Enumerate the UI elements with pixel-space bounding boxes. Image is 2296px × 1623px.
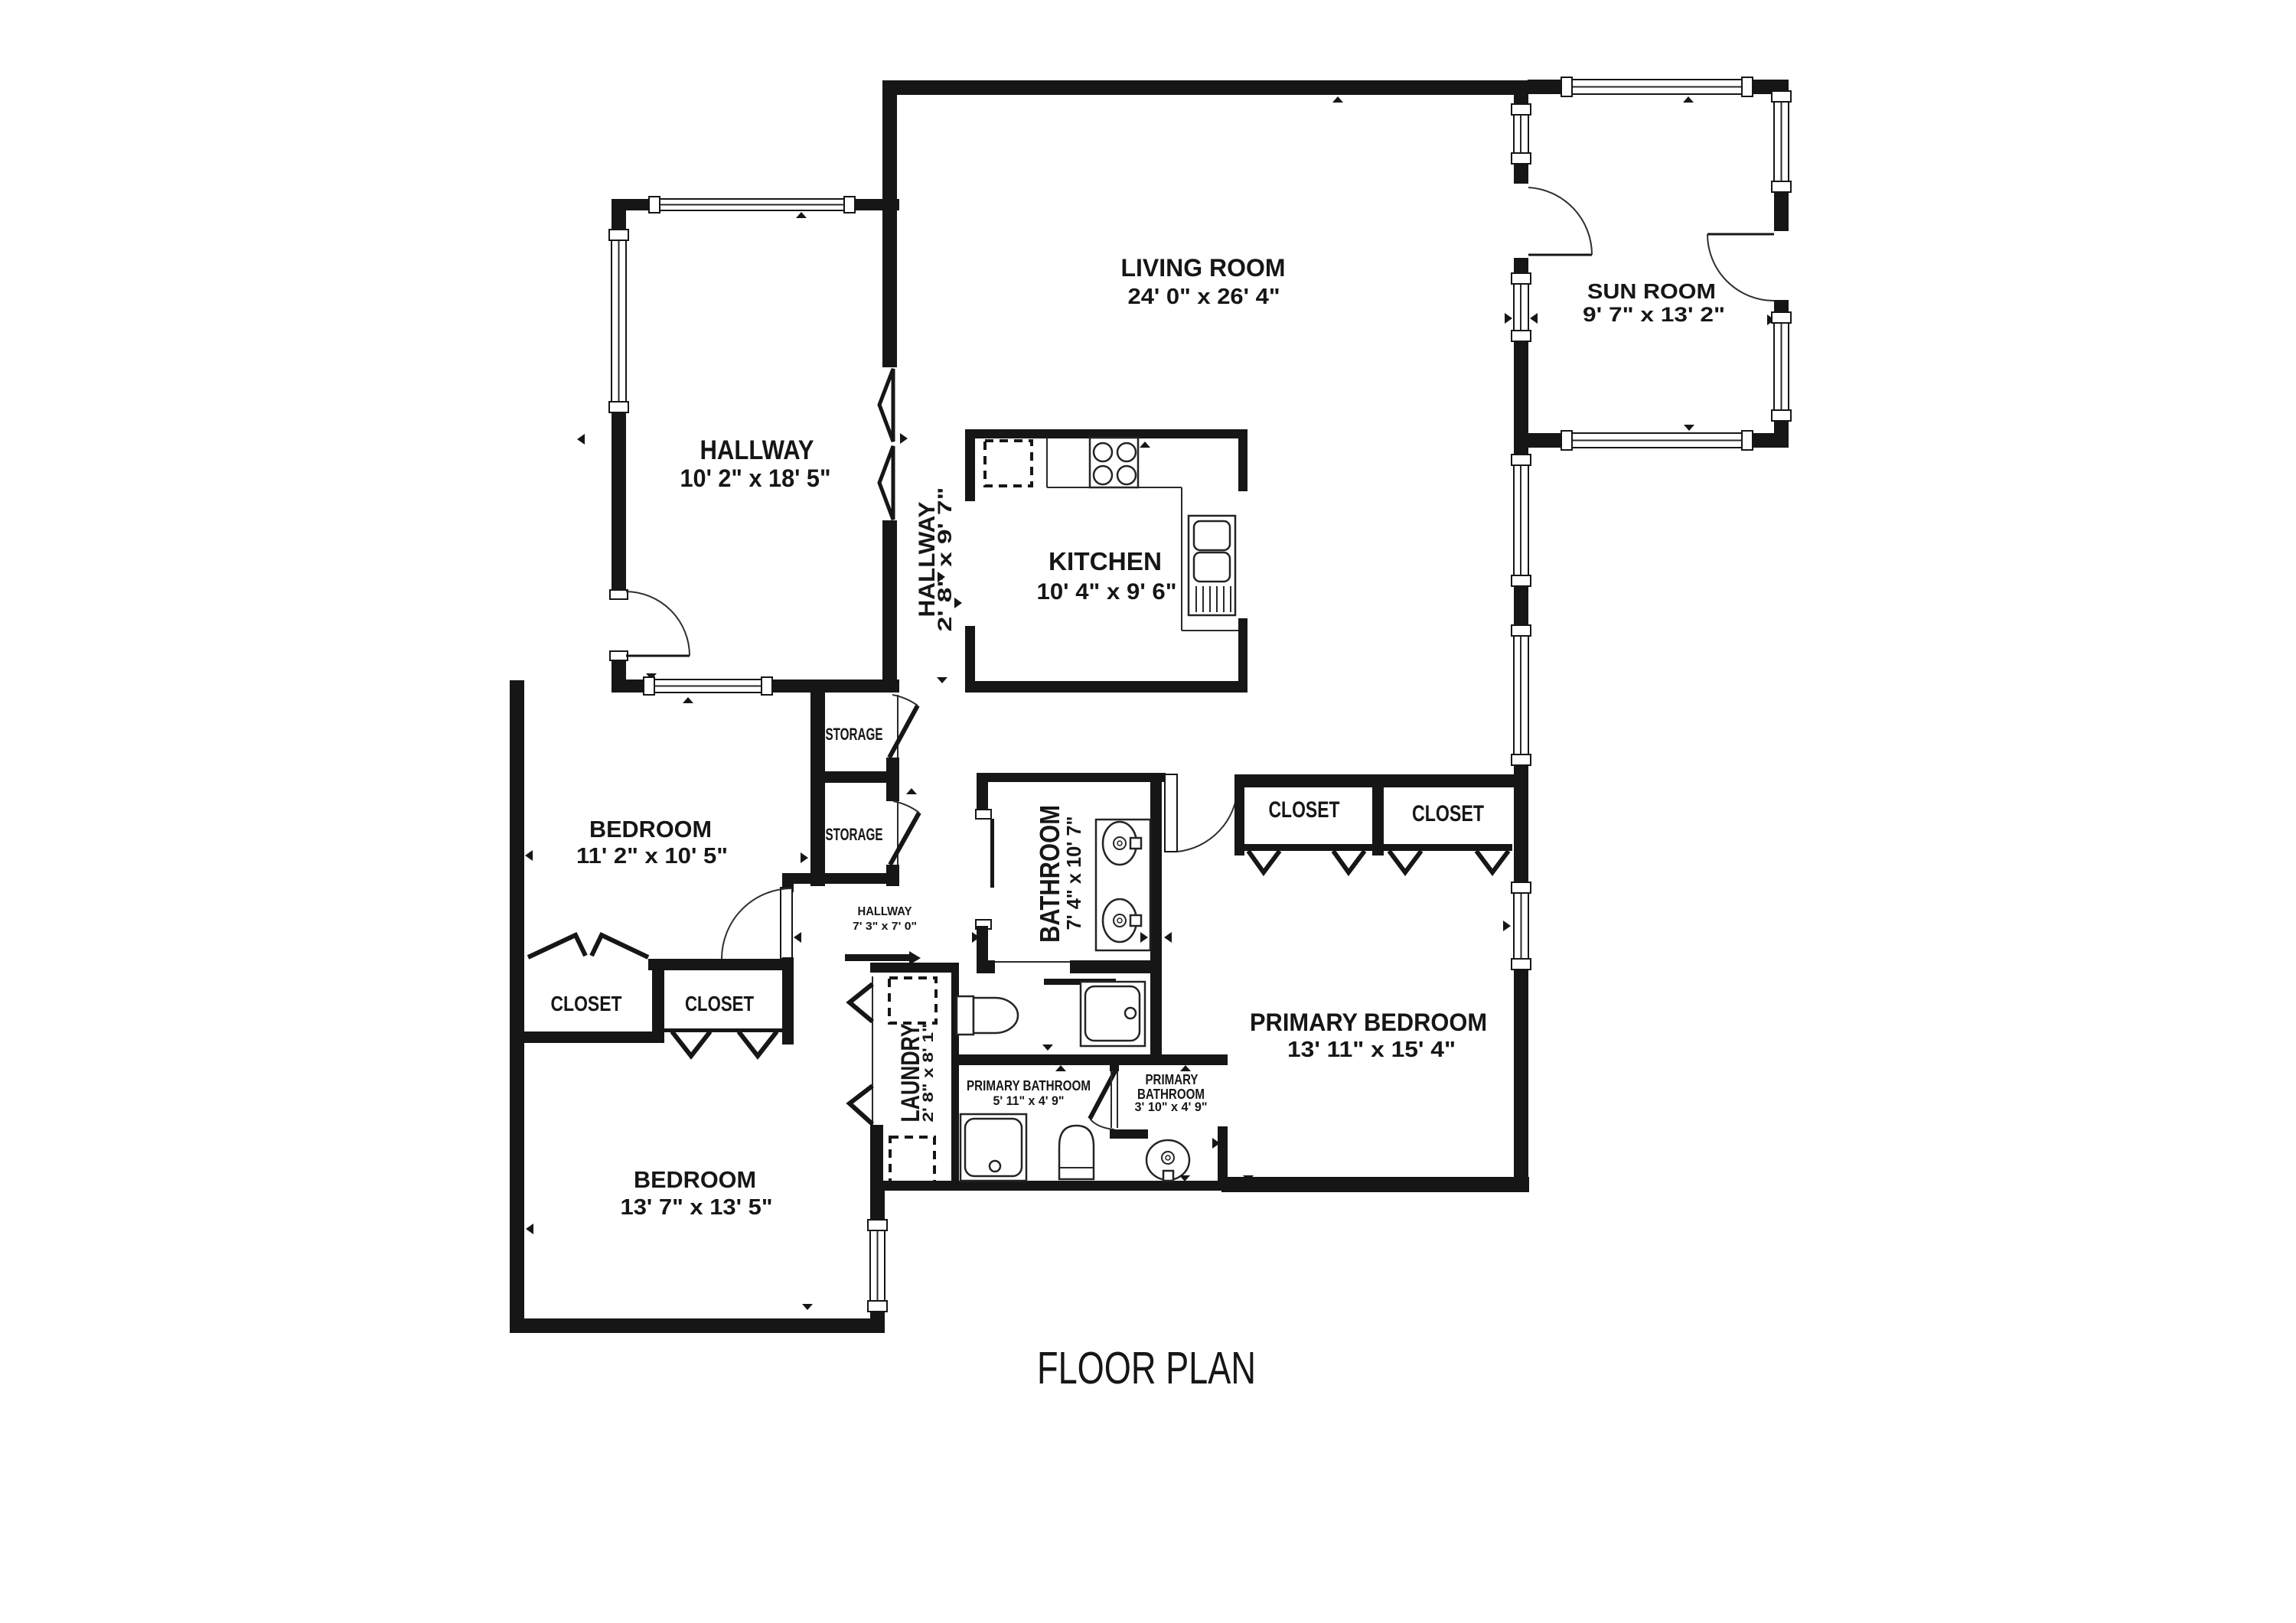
svg-text:10' 4" x 9' 6": 10' 4" x 9' 6"	[1037, 579, 1177, 605]
svg-text:CLOSET: CLOSET	[685, 992, 754, 1015]
svg-text:LIVING ROOM: LIVING ROOM	[1121, 254, 1286, 282]
svg-text:11' 2" x 10' 5": 11' 2" x 10' 5"	[576, 844, 728, 869]
svg-text:PRIMARY BEDROOM: PRIMARY BEDROOM	[1250, 1009, 1487, 1036]
svg-text:FLOOR PLAN: FLOOR PLAN	[1037, 1343, 1256, 1393]
svg-text:KITCHEN: KITCHEN	[1049, 547, 1162, 575]
svg-text:13' 7" x 13' 5": 13' 7" x 13' 5"	[621, 1195, 773, 1220]
svg-text:CLOSET: CLOSET	[551, 992, 622, 1015]
svg-text:10' 2" x 18' 5": 10' 2" x 18' 5"	[680, 464, 831, 492]
svg-text:5' 11" x 4' 9": 5' 11" x 4' 9"	[993, 1093, 1065, 1108]
svg-text:HALLWAY: HALLWAY	[858, 905, 912, 918]
svg-text:BEDROOM: BEDROOM	[589, 816, 712, 842]
svg-text:3' 10" x 4' 9": 3' 10" x 4' 9"	[1135, 1100, 1208, 1114]
svg-text:BEDROOM: BEDROOM	[634, 1166, 756, 1193]
svg-text:BATHROOM: BATHROOM	[1034, 805, 1065, 943]
svg-text:STORAGE: STORAGE	[826, 725, 883, 744]
svg-text:13' 11" x 15' 4": 13' 11" x 15' 4"	[1287, 1038, 1456, 1062]
svg-text:SUN ROOM: SUN ROOM	[1587, 279, 1716, 303]
svg-text:HALLWAY: HALLWAY	[700, 435, 814, 465]
svg-text:2' 8" x 9' 7": 2' 8" x 9' 7"	[934, 487, 956, 632]
svg-text:2' 8" x 8' 1": 2' 8" x 8' 1"	[921, 1024, 937, 1123]
svg-text:PRIMARY: PRIMARY	[1146, 1072, 1199, 1087]
svg-text:24' 0" x 26' 4": 24' 0" x 26' 4"	[1128, 285, 1280, 309]
svg-text:CLOSET: CLOSET	[1269, 797, 1340, 823]
svg-text:PRIMARY BATHROOM: PRIMARY BATHROOM	[967, 1078, 1091, 1093]
svg-text:CLOSET: CLOSET	[1412, 801, 1484, 826]
svg-text:7' 4" x 10' 7": 7' 4" x 10' 7"	[1062, 816, 1085, 930]
svg-text:9' 7" x 13' 2": 9' 7" x 13' 2"	[1583, 303, 1725, 326]
svg-text:STORAGE: STORAGE	[826, 825, 883, 844]
svg-text:7' 3" x 7' 0": 7' 3" x 7' 0"	[853, 920, 917, 933]
